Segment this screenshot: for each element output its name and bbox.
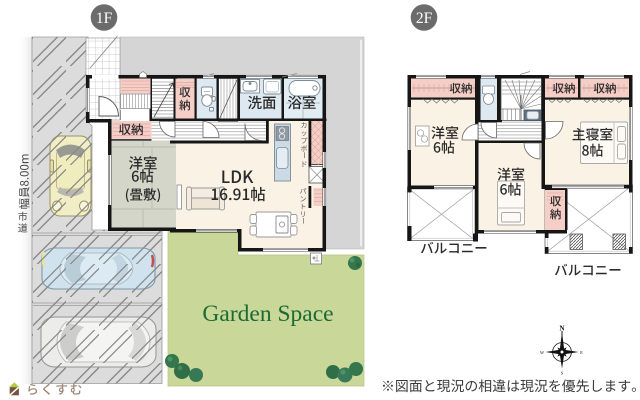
svg-text:2F: 2F [416, 10, 433, 27]
svg-text:N: N [559, 325, 564, 333]
svg-text:1F: 1F [96, 10, 113, 27]
svg-text:E: E [580, 350, 583, 355]
svg-text:Garden Space: Garden Space [202, 301, 333, 327]
